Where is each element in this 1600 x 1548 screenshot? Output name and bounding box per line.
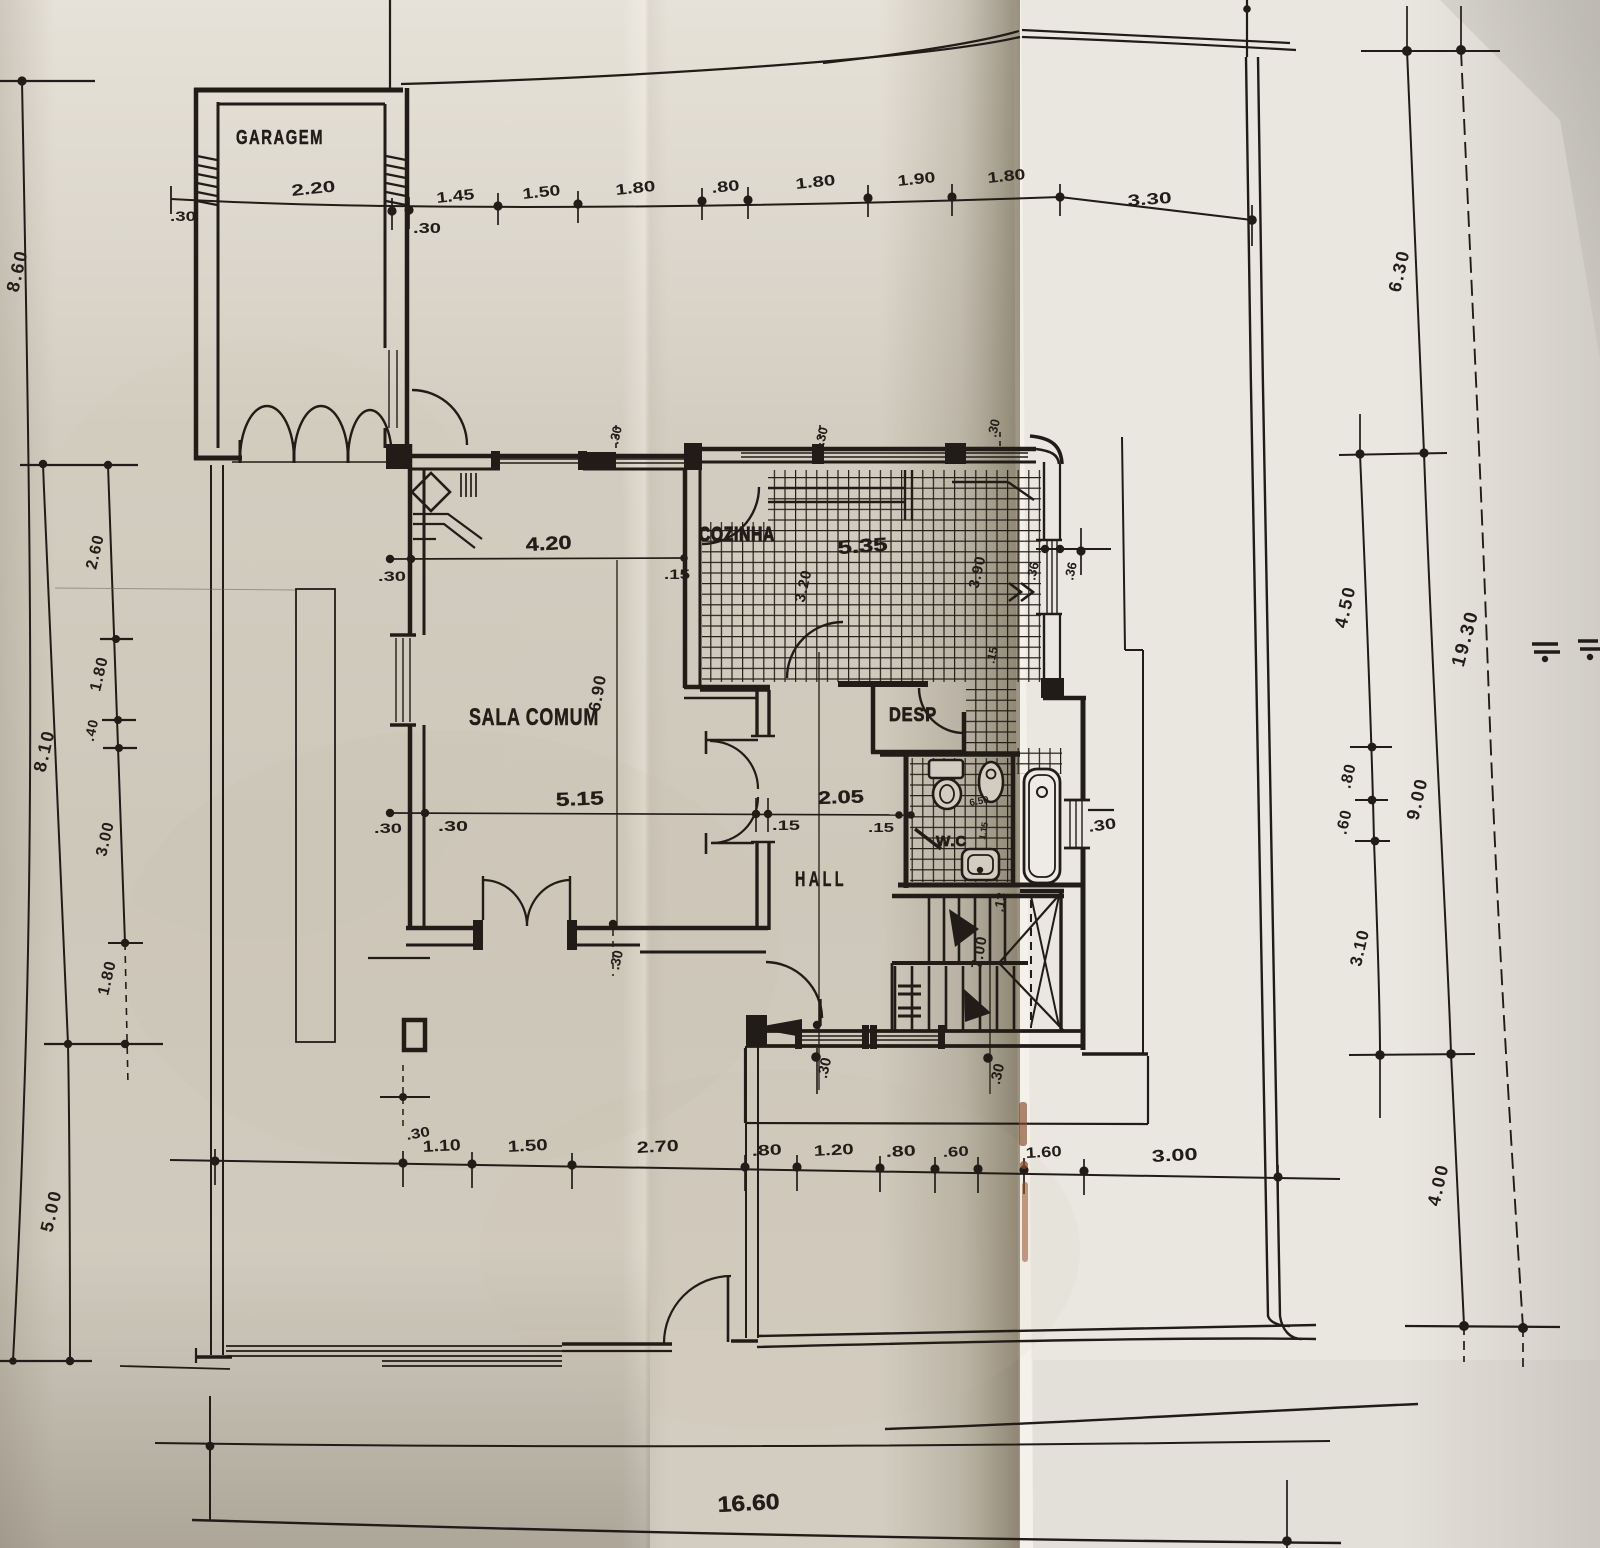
svg-text:.30: .30 xyxy=(170,208,196,224)
svg-text:4.20: 4.20 xyxy=(525,533,572,556)
svg-text:.30: .30 xyxy=(413,220,441,237)
svg-text:.80: .80 xyxy=(751,1141,782,1160)
svg-text:.30: .30 xyxy=(438,818,468,835)
svg-text:5.15: 5.15 xyxy=(555,788,604,811)
svg-text:1.10: 1.10 xyxy=(422,1137,461,1156)
svg-text:HALL: HALL xyxy=(795,868,847,891)
svg-text:.60: .60 xyxy=(942,1143,969,1160)
svg-text:.15: .15 xyxy=(868,820,894,835)
svg-text:1.20: 1.20 xyxy=(813,1141,854,1160)
svg-text:.80: .80 xyxy=(711,177,741,197)
svg-text:3.30: 3.30 xyxy=(1127,190,1172,210)
svg-text:.13: .13 xyxy=(991,891,1010,913)
svg-text:5.35: 5.35 xyxy=(837,535,889,559)
svg-text:3.00: 3.00 xyxy=(1151,1145,1198,1166)
svg-text:DESP: DESP xyxy=(889,705,937,726)
svg-text:.80: .80 xyxy=(885,1142,916,1161)
svg-text:.30: .30 xyxy=(378,568,406,584)
svg-text:16.60: 16.60 xyxy=(717,1489,780,1517)
svg-text:2.70: 2.70 xyxy=(636,1138,679,1157)
svg-text:1.50: 1.50 xyxy=(507,1137,548,1156)
svg-text:.30: .30 xyxy=(374,820,402,836)
svg-text:.15: .15 xyxy=(664,566,690,582)
svg-text:1.60: 1.60 xyxy=(1025,1143,1062,1162)
svg-text:COZINHA: COZINHA xyxy=(699,524,775,546)
svg-text:SALA COMUM: SALA COMUM xyxy=(469,704,599,731)
svg-text:2.05: 2.05 xyxy=(817,786,864,808)
svg-text:.15: .15 xyxy=(772,817,800,833)
svg-text:GARAGEM: GARAGEM xyxy=(236,127,324,149)
